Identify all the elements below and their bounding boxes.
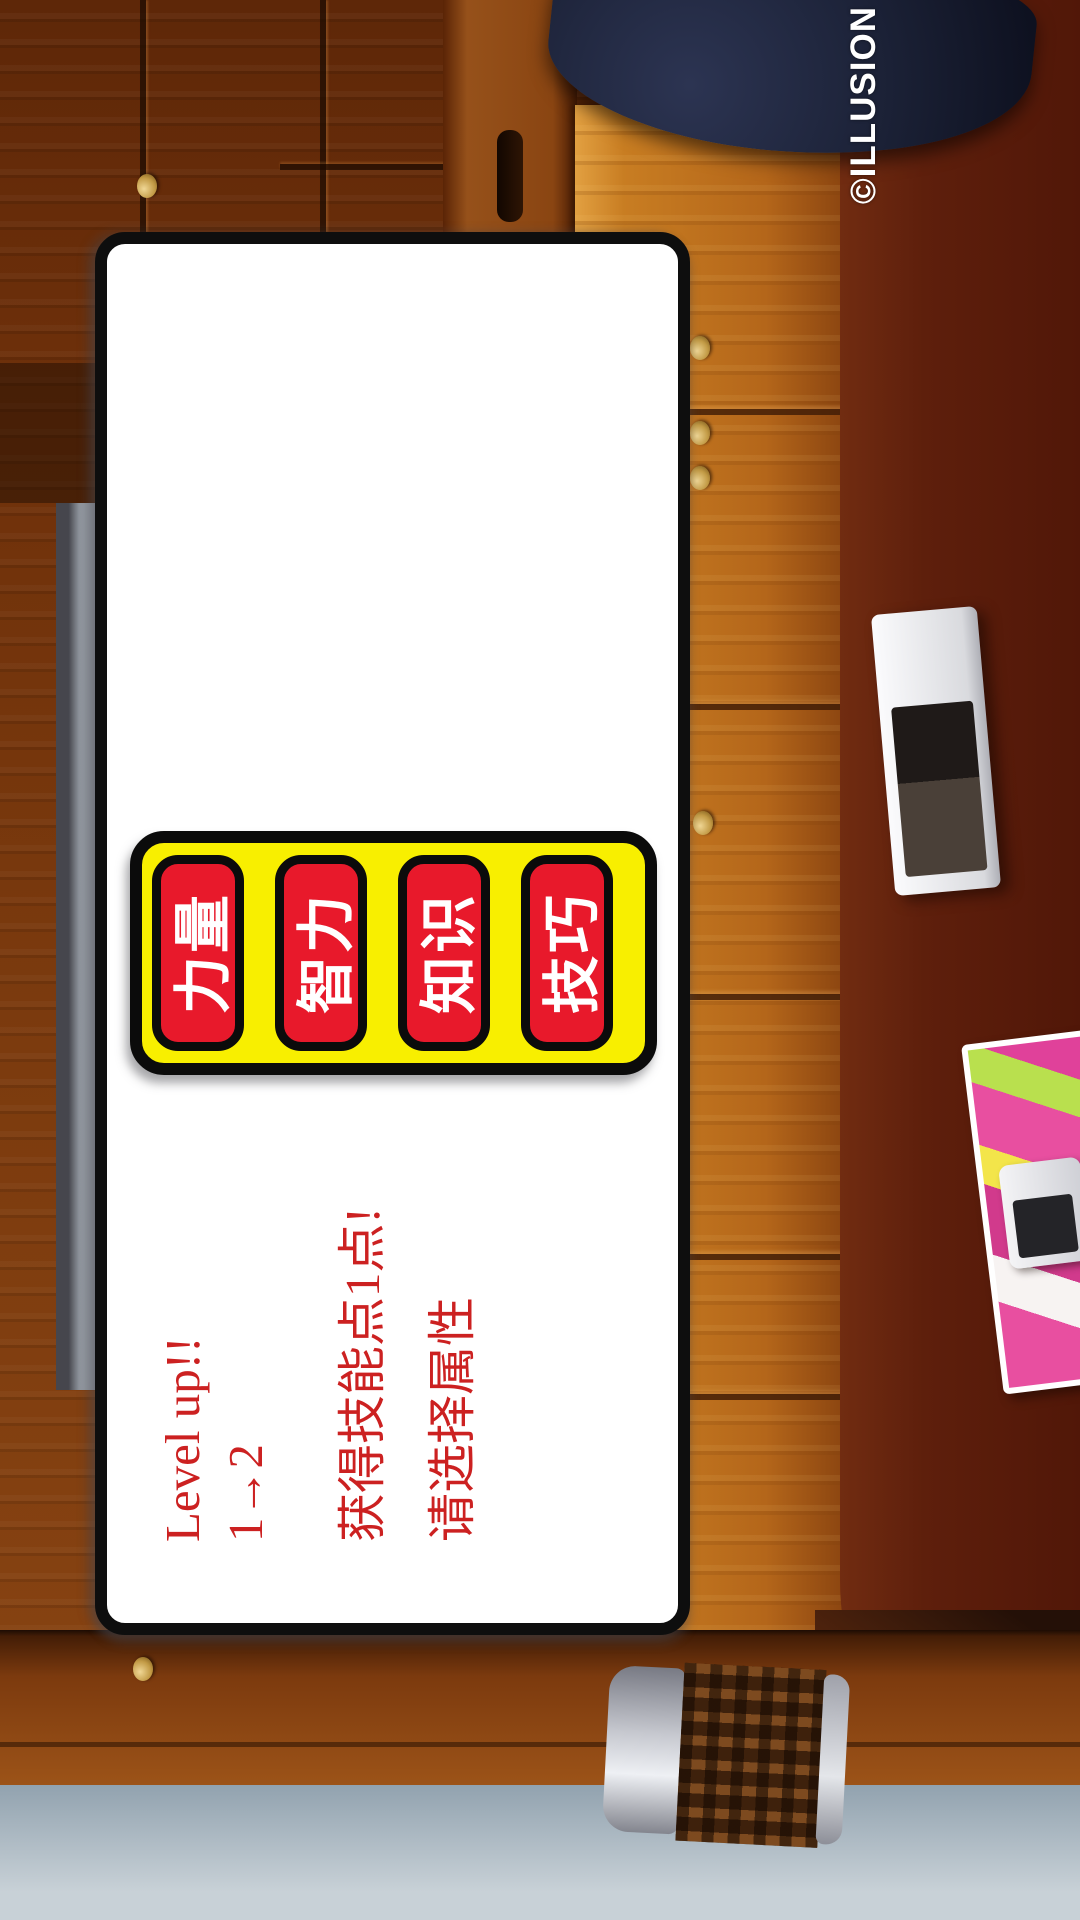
choose-attribute-prompt: 请选择属性 — [427, 1297, 480, 1542]
level-up-dialog: Level up!! 1→2 获得技能点1点! 请选择属性 力量 智力 知识 技… — [95, 232, 690, 1635]
cabinet-base-band — [0, 1630, 1080, 1785]
strength-button[interactable]: 力量 — [152, 855, 244, 1051]
cabinet-seam — [320, 0, 326, 232]
drawer-knob — [690, 466, 710, 490]
cabinet-groove — [0, 1742, 1080, 1747]
door-handle-slot — [497, 130, 523, 222]
skill-point-message: 获得技能点1点! — [337, 1207, 390, 1542]
level-change-text: 1→2 — [220, 1444, 273, 1542]
drawer-knob — [137, 174, 157, 198]
thermos-bottle — [602, 1659, 851, 1849]
drawer-knob — [690, 421, 710, 445]
gray-board-strip — [56, 503, 98, 1390]
floor — [0, 1780, 1080, 1920]
thermos-cup-icon — [602, 1665, 687, 1835]
rotated-game-stage: Level up!! 1→2 获得技能点1点! 请选择属性 力量 智力 知识 技… — [0, 0, 1080, 1920]
drawer-knob — [133, 1657, 153, 1681]
phone-screen — [1012, 1194, 1079, 1259]
shadow-patch — [0, 363, 98, 503]
knowledge-button[interactable]: 知识 — [398, 855, 490, 1051]
thermos-body — [675, 1663, 826, 1848]
tablet-screen — [891, 701, 988, 877]
intelligence-button[interactable]: 智力 — [275, 855, 367, 1051]
drawer-knob — [693, 811, 713, 835]
attribute-button-panel: 力量 智力 知识 技巧 — [130, 831, 657, 1075]
skill-button[interactable]: 技巧 — [521, 855, 613, 1051]
phone — [998, 1156, 1080, 1269]
level-up-title: Level up!! — [157, 1337, 210, 1542]
drawer-knob — [690, 336, 710, 360]
illusion-watermark: ©ILLUSION — [844, 6, 884, 204]
